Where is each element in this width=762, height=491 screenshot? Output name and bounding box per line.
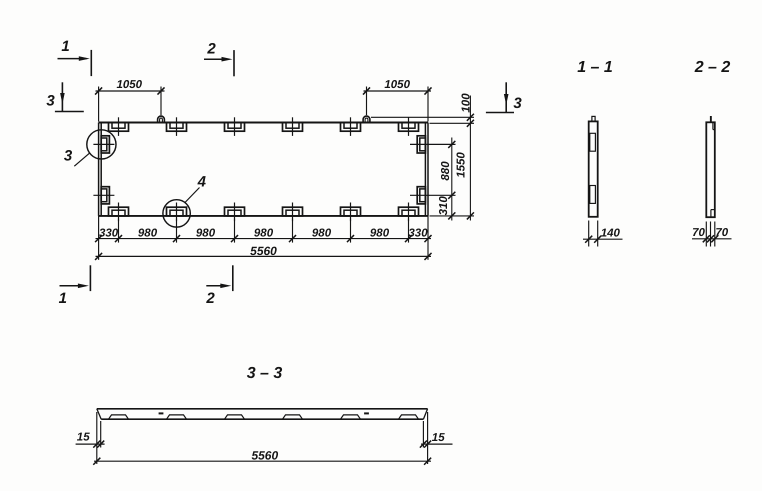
svg-text:1050: 1050: [384, 79, 410, 91]
svg-text:980: 980: [254, 227, 274, 239]
svg-text:3: 3: [513, 95, 522, 112]
svg-text:980: 980: [312, 227, 332, 239]
svg-text:3: 3: [64, 148, 73, 165]
svg-text:1550: 1550: [455, 152, 467, 178]
svg-text:880: 880: [440, 161, 452, 181]
svg-text:330: 330: [99, 227, 119, 239]
svg-text:2: 2: [206, 41, 216, 58]
svg-text:310: 310: [438, 196, 450, 216]
svg-text:4: 4: [197, 174, 207, 191]
svg-text:140: 140: [601, 228, 621, 240]
svg-text:2: 2: [205, 290, 215, 307]
svg-text:1: 1: [59, 290, 67, 307]
svg-text:100: 100: [460, 93, 472, 113]
svg-text:980: 980: [196, 227, 216, 239]
svg-text:5560: 5560: [251, 448, 278, 462]
svg-text:980: 980: [138, 227, 158, 239]
svg-text:1050: 1050: [117, 79, 143, 91]
svg-text:15: 15: [432, 432, 445, 444]
svg-text:1 – 1: 1 – 1: [577, 59, 613, 76]
svg-text:1: 1: [61, 38, 69, 55]
svg-text:980: 980: [370, 227, 390, 239]
svg-text:3: 3: [46, 93, 55, 110]
svg-text:5560: 5560: [250, 244, 277, 258]
svg-text:15: 15: [77, 432, 90, 444]
svg-text:70: 70: [692, 227, 705, 239]
svg-text:3 – 3: 3 – 3: [247, 365, 283, 382]
svg-text:2 – 2: 2 – 2: [694, 59, 731, 76]
svg-text:70: 70: [715, 227, 728, 239]
svg-text:330: 330: [408, 227, 428, 239]
